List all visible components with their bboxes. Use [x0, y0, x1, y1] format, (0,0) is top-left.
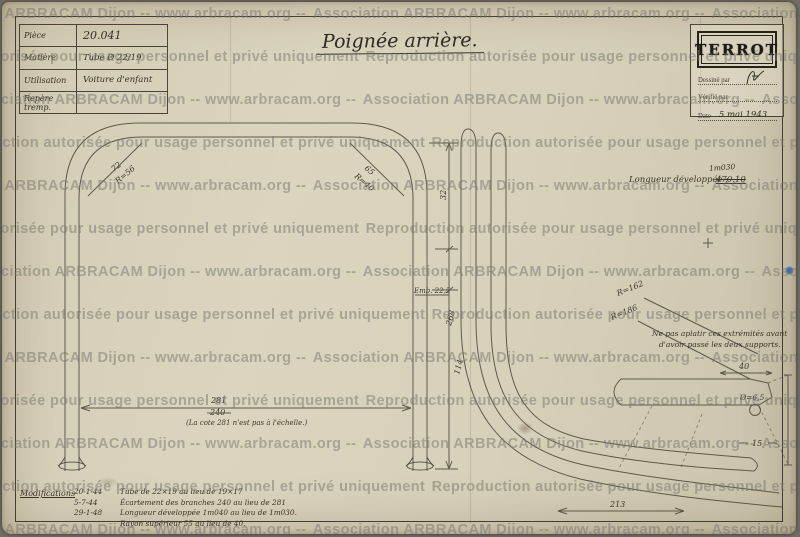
flatten-note-line1: Ne pas aplatir ces extrémités avant	[652, 329, 787, 338]
title-block-table: Pièce 20.041 Matière Tube Ø 22/19 Utilis…	[19, 24, 168, 114]
dim-chain-top: 32	[439, 190, 448, 200]
paper-sheet: 72 R=56 65 R=40 32 Emb. 22,5 268 114 281…	[2, 2, 796, 534]
modification-date: 20-1-44	[74, 487, 120, 498]
modification-row: 29-1-48 Longueur développée 1m040 au lie…	[74, 508, 297, 519]
modification-text: Longueur développée 1m040 au lieu de 1m0…	[120, 508, 297, 519]
modification-date	[74, 519, 120, 530]
dim-213: 213	[609, 500, 625, 509]
company-stamp-block: TERROT Dessiné par Vérifié par Date 5 ma…	[690, 24, 784, 117]
center-cross-mark	[703, 238, 713, 248]
row-label: Repère tremp.	[20, 92, 77, 113]
dim-chain-mid: 268	[444, 309, 457, 327]
drawn-by-label: Dessiné par	[698, 77, 730, 84]
dim-corner-right: 65	[363, 164, 377, 177]
modification-text: Écartement des branches 240 au lieu de 2…	[120, 498, 286, 509]
modification-date: 5-7-44	[74, 498, 120, 509]
drawing-title: Poignée arrière.	[300, 30, 500, 54]
developed-length-old-value: 470.10	[716, 175, 746, 185]
profile-top-caps	[461, 129, 506, 151]
width-dim-line	[81, 405, 411, 413]
handle-foot-right	[407, 462, 433, 470]
dim-width-old-value: 240	[209, 408, 225, 417]
construction-dashed-lines	[618, 375, 788, 470]
table-row: Pièce 20.041	[20, 25, 167, 47]
checked-by-label: Vérifié par	[698, 94, 728, 101]
dim-tube-label: Emb. 22,5	[413, 287, 451, 295]
row-value: Voiture d'enfant	[77, 75, 167, 85]
row-label: Pièce	[20, 25, 77, 46]
table-row: Repère tremp.	[20, 92, 167, 113]
handle-foot-flares	[58, 457, 434, 466]
developed-length-label: Longueur développée :	[629, 175, 728, 185]
modifications-block: 20-1-44 Tube de 22×19 au lieu de 19×17 5…	[74, 487, 297, 529]
dim-radius-inner: R=186	[608, 303, 638, 322]
page-title: Poignée arrière.	[316, 29, 484, 55]
date-row: Date 5 mai 1943	[698, 107, 777, 121]
vertical-dim-chain	[415, 143, 458, 469]
terrot-logo-text: TERROT	[695, 41, 779, 59]
modifications-label: Modifications	[20, 489, 75, 498]
handle-foot-left	[59, 462, 85, 470]
row-value: 20.041	[77, 29, 167, 42]
modification-row: 5-7-44 Écartement des branches 240 au li…	[74, 498, 297, 509]
dim-chain-low: 114	[452, 358, 465, 375]
table-row: Utilisation Voiture d'enfant	[20, 70, 167, 92]
modification-row: 20-1-44 Tube de 22×19 au lieu de 19×17	[74, 487, 297, 498]
dim-radius-outer: R=162	[614, 279, 644, 298]
flatten-note-line2: d'avoir passé les deux supports.	[659, 340, 781, 349]
checked-by-row: Vérifié par	[698, 88, 777, 102]
modification-text: Tube de 22×19 au lieu de 19×17	[120, 487, 243, 498]
modification-date: 29-1-48	[74, 508, 120, 519]
table-row: Matière Tube Ø 22/19	[20, 47, 167, 69]
scale-note: (La cote 281 n'est pas à l'échelle.)	[186, 419, 307, 427]
row-value: Tube Ø 22/19	[77, 53, 167, 63]
end-hole	[750, 405, 761, 416]
dim-15: 15	[752, 439, 762, 448]
scanned-technical-drawing: 72 R=56 65 R=40 32 Emb. 22,5 268 114 281…	[0, 0, 800, 537]
modification-text: Rayon supérieur 55 au lieu de 40.	[120, 519, 246, 530]
signature-mark	[743, 65, 769, 87]
modification-row: Rayon supérieur 55 au lieu de 40.	[74, 519, 297, 530]
profile-sweep-curves	[461, 147, 782, 507]
row-label: Utilisation	[20, 70, 77, 91]
dim-hole-diameter: Ø=6,5	[739, 393, 765, 402]
dim-width-value: 281	[210, 396, 226, 405]
right-view-handle-profile	[461, 129, 792, 514]
date-value: 5 mai 1943	[719, 110, 767, 120]
dim-tip-width: 40	[738, 362, 749, 371]
date-label: Date	[698, 113, 711, 120]
developed-length-new-value: 1m030	[709, 162, 736, 173]
terrot-logo: TERROT	[697, 31, 777, 68]
row-label: Matière	[20, 47, 77, 68]
